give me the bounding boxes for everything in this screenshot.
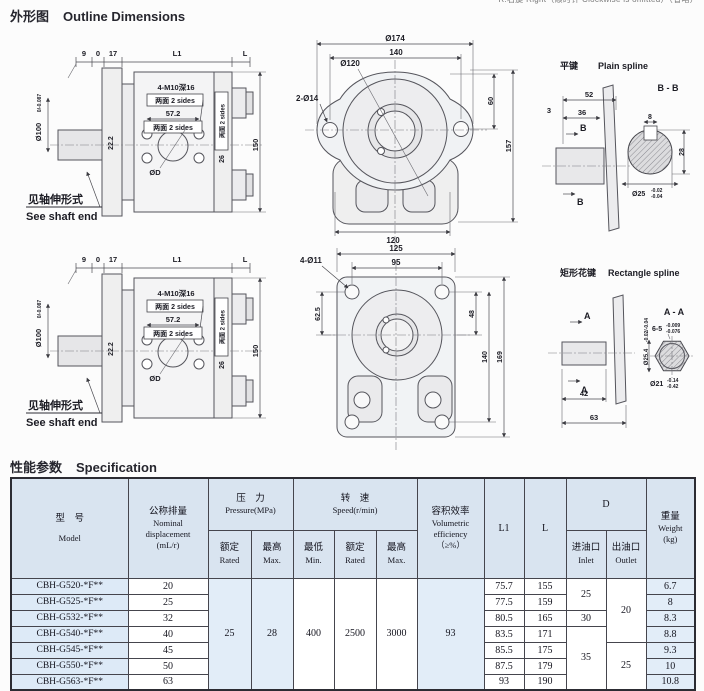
shaft-dia-tolerance: 0/-0.087 (37, 94, 43, 113)
d-header: D (567, 498, 646, 511)
vol-header-en2: efficiency (418, 529, 484, 540)
dim-17: 17 (109, 49, 117, 58)
col-header-model: 型 号 Model (11, 478, 128, 578)
plain-spline-title-zh: 平键 (560, 60, 579, 71)
pressure-header-zh: 压 力 (209, 493, 293, 505)
dim-8: 8 (648, 114, 652, 121)
subheader-speed-rated: 额定 Rated (334, 530, 376, 578)
dim-63: 63 (590, 413, 598, 422)
bolt-hole (194, 153, 204, 163)
section-arrow-a-top: A (584, 311, 591, 321)
weight-cell: 8.8 (646, 626, 695, 642)
section-arrow-b-bottom: B (577, 197, 584, 207)
subheader-pressure-max: 最高 Max. (251, 530, 293, 578)
plain-spline-drawing: 平键 Plain spline 52 3 36 B B B - B 8 (542, 60, 690, 231)
min-en: Min. (294, 555, 334, 566)
model-cell: CBH-G532-*F** (11, 610, 128, 626)
dim-4-dia-11: 4-Ø11 (300, 256, 322, 265)
subheader-outlet: 出油口 Outlet (606, 530, 646, 578)
bolt-hole (142, 153, 152, 163)
dim-57-2: 57.2 (166, 109, 181, 118)
rect-flange-front-view: 125 95 4-Ø11 62.5 48 140 169 (300, 244, 510, 450)
pump-side-view-drawing: 9 0 17 L1 L Ø100 0/-0.087 (26, 49, 266, 223)
col-header-speed: 转 速 Speed(r/min) (293, 478, 417, 530)
l1-cell: 87.5 (484, 658, 524, 674)
weight-cell: 8.3 (646, 610, 695, 626)
dim-L1: L1 (173, 49, 182, 58)
dim-125: 125 (389, 244, 403, 253)
pressure-max-cell: 28 (251, 578, 293, 690)
dim-140: 140 (389, 48, 403, 57)
weight-cell: 10.8 (646, 674, 695, 690)
l1-cell: 80.5 (484, 610, 524, 626)
disp-header-en1: Nominal (129, 518, 208, 529)
port-boss-top (232, 88, 246, 118)
max-en: Max. (377, 555, 417, 566)
inlet-zh: 进油口 (567, 542, 606, 554)
dia-25-4-tolerance: -0.02/-0.04 (644, 318, 650, 342)
dim-dia-25: Ø25 (632, 191, 645, 198)
dim-0: 0 (96, 49, 100, 58)
l1-cell: 83.5 (484, 626, 524, 642)
pressure-header-en: Pressure(MPa) (209, 505, 293, 516)
disp-cell: 40 (128, 626, 208, 642)
vol-header-en1: Volumetric (418, 518, 484, 529)
weight-cell: 10 (646, 658, 695, 674)
disp-header-en3: (mL/r) (129, 540, 208, 551)
both-sides-label: 两面 2 sides (153, 124, 193, 132)
dim-26: 26 (219, 155, 226, 163)
dim-36: 36 (578, 108, 586, 117)
port-hole (354, 392, 370, 408)
spline-shaft (562, 342, 606, 365)
section-a-a-label: A - A (664, 307, 685, 317)
port-hole (425, 392, 441, 408)
model-cell: CBH-G540-*F** (11, 626, 128, 642)
l1-header: L1 (485, 522, 524, 535)
col-header-efficiency: 容积效率 Volumetric efficiency （≥%） (417, 478, 484, 578)
dim-dia-174: Ø174 (385, 34, 405, 43)
pilot-dia-label: ØD (149, 168, 161, 177)
l1-cell: 93 (484, 674, 524, 690)
tap-note: 4-M10深16 (157, 82, 194, 92)
pressure-rated-cell: 25 (208, 578, 251, 690)
dia-21-tol-lower: -0.42 (667, 384, 679, 390)
rect-spline-title-en: Rectangle spline (608, 268, 680, 278)
shaft-dia-label: Ø100 (34, 123, 43, 141)
col-header-weight: 重量 Weight (kg) (646, 478, 695, 578)
rectangle-spline-drawing: 矩形花键 Rectangle spline A A 42 63 A - A 6-… (548, 267, 694, 428)
speed-rated-cell: 2500 (334, 578, 376, 690)
inlet-cell: 30 (566, 610, 606, 626)
dim-dia-120: Ø120 (340, 59, 360, 68)
notch (383, 347, 389, 353)
subheader-speed-min: 最低 Min. (293, 530, 334, 578)
weight-header-unit: (kg) (647, 534, 695, 545)
flange-plate (613, 295, 626, 404)
mount-hole (435, 415, 449, 429)
l-cell: 171 (524, 626, 566, 642)
oval-flange-front-view: Ø174 140 Ø120 2-Ø14 60 157 120 (296, 34, 518, 250)
disp-cell: 20 (128, 578, 208, 594)
col-header-pressure: 压 力 Pressure(MPa) (208, 478, 293, 530)
key (644, 126, 657, 140)
outlet-cell: 20 (606, 578, 646, 642)
mount-hole-right (454, 122, 469, 137)
model-cell: CBH-G550-*F** (11, 658, 128, 674)
model-cell: CBH-G520-*F** (11, 578, 128, 594)
weight-cell: 9.3 (646, 642, 695, 658)
outlet-cell: 25 (606, 642, 646, 690)
col-header-l1: L1 (484, 478, 524, 578)
dim-9: 9 (82, 49, 86, 58)
outline-drawings: 9 0 17 L1 L Ø100 0/-0.087 (0, 0, 704, 455)
vol-header-zh: 容积效率 (418, 506, 484, 518)
spec-title-en: Specification (76, 460, 157, 475)
pump-body (134, 72, 214, 212)
dim-169: 169 (497, 351, 504, 363)
inlet-cell: 25 (566, 578, 606, 610)
catalog-page: R:右旋 Right（顺时针 Clockwise is omitted）（省略）… (0, 0, 704, 691)
model-cell: CBH-G545-*F** (11, 642, 128, 658)
mount-hole (345, 415, 359, 429)
pump-side-view-drawing-2 (26, 255, 266, 429)
rated-zh: 额定 (209, 542, 251, 554)
dim-52: 52 (585, 90, 593, 99)
l-cell: 155 (524, 578, 566, 594)
shaft-note-zh: 见轴伸形式 (28, 192, 83, 206)
shaft-note-en: See shaft end (26, 211, 98, 223)
dim-60: 60 (486, 97, 495, 105)
dim-22-2: 22.2 (108, 136, 115, 150)
dim-3: 3 (547, 106, 551, 115)
l-cell: 159 (524, 594, 566, 610)
outlet-zh: 出油口 (607, 542, 646, 554)
min-zh: 最低 (294, 542, 334, 554)
disp-cell: 50 (128, 658, 208, 674)
speed-header-en: Speed(r/min) (294, 505, 417, 516)
dim-157: 157 (504, 140, 513, 153)
notch (383, 317, 389, 323)
table-row: CBH-G520-*F** 20 25 28 400 2500 3000 93 … (11, 578, 695, 594)
disp-cell: 32 (128, 610, 208, 626)
rated-en: Rated (209, 555, 251, 566)
mount-hole (435, 285, 449, 299)
weight-header-zh: 重量 (647, 511, 695, 523)
col-header-l: L (524, 478, 566, 578)
dia-25-tol-lower: -0.04 (651, 194, 663, 200)
specification-title: 性能参数 Specification (10, 457, 157, 476)
dim-42: 42 (580, 389, 588, 398)
section-b-b-label: B - B (658, 83, 679, 93)
l1-cell: 75.7 (484, 578, 524, 594)
rated-zh: 额定 (335, 542, 376, 554)
disp-cell: 63 (128, 674, 208, 690)
vol-header-en3: （≥%） (418, 540, 484, 551)
dim-95: 95 (392, 258, 401, 267)
both-sides-label: 两面 2 sides (155, 97, 195, 105)
port-plug-top (246, 92, 253, 114)
subheader-inlet: 进油口 Inlet (566, 530, 606, 578)
rect-spline-title-zh: 矩形花键 (559, 267, 597, 278)
dim-28: 28 (679, 148, 686, 156)
dim-140: 140 (482, 351, 489, 363)
disp-cell: 25 (128, 594, 208, 610)
dim-48: 48 (469, 310, 476, 318)
model-cell: CBH-G525-*F** (11, 594, 128, 610)
notch (378, 109, 385, 116)
dim-150: 150 (251, 139, 260, 152)
dim-dia-25-4: Ø25.4 (644, 348, 650, 365)
dim-2-dia-14: 2-Ø14 (296, 94, 319, 103)
specification-table: 型 号 Model 公称排量 Nominal displacement (mL/… (10, 477, 696, 691)
disp-header-en2: displacement (129, 529, 208, 540)
l-cell: 175 (524, 642, 566, 658)
subheader-speed-max: 最高 Max. (376, 530, 417, 578)
outlet-en: Outlet (607, 555, 646, 566)
rated-en: Rated (335, 555, 376, 566)
both-sides-label: 两面 2 sides (219, 103, 227, 138)
col-header-displacement: 公称排量 Nominal displacement (mL/r) (128, 478, 208, 578)
model-header-en: Model (12, 533, 128, 544)
l-cell: 190 (524, 674, 566, 690)
flange-step (122, 84, 134, 200)
dim-L: L (243, 49, 248, 58)
l1-cell: 77.5 (484, 594, 524, 610)
plain-spline-title-en: Plain spline (598, 61, 648, 71)
max-en: Max. (252, 555, 293, 566)
max-zh: 最高 (252, 542, 293, 554)
l-cell: 179 (524, 658, 566, 674)
max-zh: 最高 (377, 542, 417, 554)
dim-62-5: 62.5 (315, 307, 322, 321)
inlet-cell: 35 (566, 626, 606, 690)
model-header-zh: 型 号 (12, 513, 128, 525)
port-boss-bottom (232, 170, 246, 200)
col-header-d: D (566, 478, 646, 530)
spline-spec: 6-5 (652, 326, 662, 333)
l1-cell: 85.5 (484, 642, 524, 658)
weight-cell: 8 (646, 594, 695, 610)
dim-dia-21: Ø21 (650, 381, 663, 388)
disp-cell: 45 (128, 642, 208, 658)
flange-plate (603, 85, 619, 231)
disp-header-zh: 公称排量 (129, 506, 208, 518)
weight-header-en: Weight (647, 523, 695, 534)
inlet-en: Inlet (567, 555, 606, 566)
l-cell: 165 (524, 610, 566, 626)
speed-min-cell: 400 (293, 578, 334, 690)
spec-title-zh: 性能参数 (10, 457, 62, 476)
notch (378, 148, 385, 155)
model-cell: CBH-G563-*F** (11, 674, 128, 690)
section-arrow-b-top: B (580, 123, 587, 133)
port-plug-bottom (246, 174, 253, 196)
vol-eff-cell: 93 (417, 578, 484, 690)
speed-max-cell: 3000 (376, 578, 417, 690)
subheader-pressure-rated: 额定 Rated (208, 530, 251, 578)
l-header: L (525, 522, 566, 535)
speed-header-zh: 转 速 (294, 493, 417, 505)
weight-cell: 6.7 (646, 578, 695, 594)
